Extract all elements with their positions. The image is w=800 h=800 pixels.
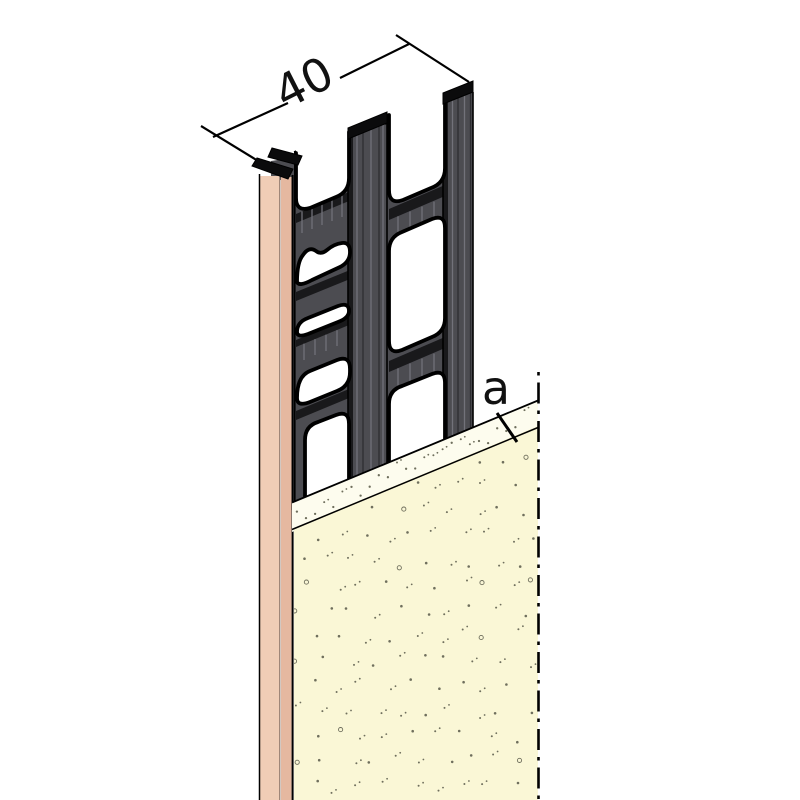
- stipple-dot: [414, 467, 416, 469]
- stipple-dot: [432, 454, 434, 456]
- stipple-dot: [525, 615, 528, 618]
- stipple-dot: [535, 663, 537, 665]
- stipple-dot: [359, 781, 361, 783]
- stipple-dot: [411, 584, 413, 586]
- stipple-dot: [423, 759, 425, 761]
- stipple-dot: [531, 712, 534, 715]
- stipple-dot: [444, 707, 446, 709]
- stipple-dot: [296, 510, 298, 512]
- stipple-dot: [389, 541, 391, 543]
- stipple-dot: [434, 527, 436, 529]
- stipple-dot: [446, 446, 448, 448]
- stipple-dot: [518, 581, 520, 583]
- stipple-dot: [305, 517, 307, 519]
- stipple-dot: [500, 604, 502, 606]
- stipple-dot: [455, 561, 457, 563]
- stipple-dot: [374, 561, 376, 563]
- stipple-dot: [400, 715, 402, 717]
- stipple-dot: [517, 782, 520, 785]
- stipple-dot: [385, 733, 387, 735]
- stipple-dot: [364, 735, 366, 737]
- stipple-dot: [346, 488, 348, 490]
- stipple-dot: [522, 514, 525, 517]
- stipple-dot: [406, 531, 409, 534]
- stipple-dot: [404, 652, 406, 654]
- stipple-dot: [517, 628, 519, 630]
- stipple-dot: [321, 710, 323, 712]
- bead-face: [260, 176, 280, 800]
- stipple-dot: [379, 614, 381, 616]
- stipple-dot: [394, 538, 396, 540]
- stipple-dot: [326, 707, 328, 709]
- stipple-dot: [460, 438, 462, 440]
- stipple-dot: [484, 479, 486, 481]
- stipple-dot: [316, 635, 319, 638]
- stipple-dot: [495, 732, 497, 734]
- stipple-dot: [516, 741, 519, 744]
- stipple-dot: [336, 691, 338, 693]
- stipple-dot: [498, 565, 500, 567]
- stipple-dot: [400, 605, 403, 608]
- stipple-dot: [524, 409, 526, 411]
- stipple-dot: [439, 484, 441, 486]
- stipple-dot: [463, 783, 465, 785]
- stipple-dot: [332, 506, 334, 508]
- stipple-dot: [421, 632, 423, 634]
- stipple-dot: [340, 688, 342, 690]
- stipple-dot: [323, 501, 325, 503]
- stipple-dot: [346, 531, 348, 533]
- stipple-dot: [499, 661, 501, 663]
- stipple-dot: [331, 552, 333, 554]
- stipple-dot: [314, 679, 317, 682]
- stipple-dot: [406, 586, 408, 588]
- stipple-dot: [462, 478, 464, 480]
- stipple-dot: [491, 735, 493, 737]
- stipple-dot: [423, 456, 425, 458]
- stipple-dot: [378, 558, 380, 560]
- stipple-dot: [344, 586, 346, 588]
- stipple-dot: [447, 638, 449, 640]
- stipple-dot: [405, 712, 407, 714]
- stipple-dot: [327, 499, 329, 501]
- stipple-dot: [484, 510, 486, 512]
- stipple-dot: [390, 688, 392, 690]
- bead-return-edge: [281, 177, 292, 800]
- stipple-dot: [471, 660, 473, 662]
- stipple-dot: [483, 531, 485, 533]
- stipple-dot: [479, 482, 481, 484]
- stipple-dot: [388, 640, 391, 643]
- stipple-dot: [478, 440, 480, 442]
- stipple-dot: [352, 554, 354, 556]
- stipple-dot: [359, 581, 361, 583]
- stipple-dot: [430, 530, 432, 532]
- stipple-dot: [382, 781, 384, 783]
- stipple-dot: [446, 511, 448, 513]
- stipple-dot: [359, 678, 361, 680]
- stipple-dot: [434, 730, 436, 732]
- stipple-dot: [481, 783, 483, 785]
- stipple-dot: [386, 778, 388, 780]
- stipple-dot: [468, 604, 471, 607]
- stipple-dot: [359, 494, 361, 496]
- stipple-dot: [439, 727, 441, 729]
- stipple-dot: [395, 755, 397, 757]
- stipple-dot: [476, 658, 478, 660]
- stipple-dot: [316, 780, 319, 783]
- stipple-dot: [479, 690, 481, 692]
- stipple-dot: [519, 565, 522, 568]
- stipple-dot: [385, 580, 388, 583]
- stipple-dot: [464, 436, 466, 438]
- stipple-dot: [530, 666, 532, 668]
- stipple-dot: [374, 617, 376, 619]
- stipple-dot: [418, 785, 420, 787]
- stipple-dot: [350, 710, 352, 712]
- stipple-dot: [458, 730, 461, 733]
- stipple-dot: [381, 712, 383, 714]
- stipple-dot: [451, 508, 453, 510]
- front-bead: [252, 158, 293, 800]
- stipple-dot: [473, 441, 475, 443]
- stipple-dot: [448, 610, 450, 612]
- stipple-dot: [372, 664, 375, 667]
- stipple-dot: [423, 505, 425, 507]
- stipple-dot: [451, 442, 453, 444]
- stipple-dot: [399, 752, 401, 754]
- stipple-dot: [442, 641, 444, 643]
- web-middle-rib: [348, 123, 387, 510]
- stipple-dot: [338, 635, 341, 638]
- stipple-dot: [465, 531, 467, 533]
- stipple-dot: [303, 557, 306, 560]
- stipple-dot: [366, 534, 369, 537]
- stipple-dot: [346, 713, 348, 715]
- stipple-dot: [354, 584, 356, 586]
- stipple-dot: [409, 678, 412, 681]
- stipple-dot: [335, 789, 337, 791]
- stipple-dot: [300, 702, 302, 704]
- stipple-dot: [395, 685, 397, 687]
- stipple-dot: [514, 484, 517, 487]
- stipple-dot: [425, 562, 428, 565]
- stipple-dot: [418, 762, 420, 764]
- stipple-dot: [462, 629, 464, 631]
- stipple-dot: [494, 712, 497, 715]
- stipple-dot: [457, 481, 459, 483]
- stipple-dot: [518, 538, 520, 540]
- stipple-dot: [353, 664, 355, 666]
- stipple-dot: [417, 481, 420, 484]
- stipple-dot: [317, 735, 320, 738]
- stipple-dot: [469, 443, 471, 445]
- stipple-dot: [427, 454, 429, 456]
- stipple-dot: [480, 513, 482, 515]
- stipple-dot: [350, 486, 352, 488]
- extension-line-left: [201, 126, 263, 164]
- stipple-dot: [528, 407, 530, 409]
- stipple-dot: [327, 555, 329, 557]
- drawing-canvas: 40 a: [0, 0, 800, 800]
- stipple-dot: [470, 754, 473, 757]
- technical-drawing-svg: 40 a: [0, 0, 800, 800]
- stipple-dot: [438, 687, 441, 690]
- stipple-dot: [467, 565, 470, 568]
- stipple-dot: [471, 577, 473, 579]
- stipple-dot: [437, 452, 439, 454]
- stipple-dot: [385, 709, 387, 711]
- stipple-dot: [387, 476, 389, 478]
- perforation-large-1: [389, 218, 445, 352]
- stipple-dot: [354, 784, 356, 786]
- stipple-dot: [314, 513, 316, 515]
- stipple-dot: [435, 487, 437, 489]
- stipple-dot: [466, 626, 468, 628]
- stipple-dot: [442, 655, 445, 658]
- stipple-dot: [484, 687, 486, 689]
- stipple-dot: [486, 780, 488, 782]
- stipple-dot: [492, 754, 494, 756]
- stipple-dot: [514, 426, 516, 428]
- stipple-dot: [396, 462, 398, 464]
- stipple-dot: [497, 751, 499, 753]
- stipple-dot: [532, 537, 535, 540]
- plaster-thickness-label: a: [482, 361, 510, 415]
- stipple-dot: [433, 587, 436, 590]
- stipple-dot: [422, 782, 424, 784]
- stipple-dot: [466, 580, 468, 582]
- stipple-dot: [495, 506, 498, 509]
- stipple-dot: [318, 759, 321, 762]
- stipple-dot: [504, 658, 506, 660]
- stipple-dot: [424, 654, 427, 657]
- stipple-dot: [442, 787, 444, 789]
- stipple-dot: [462, 681, 465, 684]
- stipple-dot: [513, 541, 515, 543]
- stipple-dot: [487, 442, 489, 444]
- stipple-dot: [355, 762, 357, 764]
- stipple-dot: [381, 736, 383, 738]
- stipple-dot: [369, 486, 371, 488]
- stipple-dot: [502, 461, 505, 464]
- stipple-dot: [442, 448, 444, 450]
- stipple-dot: [451, 564, 453, 566]
- stipple-dot: [428, 613, 431, 616]
- stipple-dot: [370, 639, 372, 641]
- stipple-dot: [400, 459, 402, 461]
- stipple-dot: [331, 792, 333, 794]
- stipple-dot: [358, 661, 360, 663]
- stipple-dot: [479, 461, 482, 464]
- stipple-dot: [488, 528, 490, 530]
- stipple-dot: [496, 427, 498, 429]
- stipple-dot: [448, 704, 450, 706]
- stipple-dot: [438, 790, 440, 792]
- stipple-dot: [495, 607, 497, 609]
- stipple-dot: [470, 528, 472, 530]
- stipple-dot: [468, 780, 470, 782]
- stipple-dot: [417, 635, 419, 637]
- perforation-top-right-notch: [389, 68, 445, 201]
- stipple-dot: [317, 539, 320, 542]
- stipple-dot: [341, 491, 343, 493]
- stipple-dot: [345, 607, 348, 610]
- stipple-dot: [479, 717, 481, 719]
- stipple-dot: [378, 474, 380, 476]
- stipple-dot: [428, 502, 430, 504]
- stipple-dot: [360, 759, 362, 761]
- stipple-dot: [399, 655, 401, 657]
- stipple-dot: [424, 714, 427, 717]
- stipple-dot: [365, 642, 367, 644]
- dimension-line-left-segment: [213, 103, 288, 137]
- stipple-dot: [411, 730, 414, 733]
- stipple-dot: [371, 506, 374, 509]
- stipple-dot: [451, 761, 454, 764]
- stipple-dot: [322, 656, 325, 659]
- stipple-dot: [514, 584, 516, 586]
- stipple-dot: [368, 761, 371, 764]
- stipple-dot: [484, 714, 486, 716]
- stipple-dot: [331, 607, 334, 610]
- stipple-dot: [347, 557, 349, 559]
- stipple-dot: [505, 683, 508, 686]
- stipple-dot: [340, 589, 342, 591]
- stipple-dot: [354, 681, 356, 683]
- stipple-dot: [295, 705, 297, 707]
- stipple-dot: [522, 625, 524, 627]
- stipple-dot: [342, 534, 344, 536]
- stipple-dot: [503, 562, 505, 564]
- stipple-dot: [443, 613, 445, 615]
- stipple-dot: [405, 468, 407, 470]
- stipple-dot: [359, 738, 361, 740]
